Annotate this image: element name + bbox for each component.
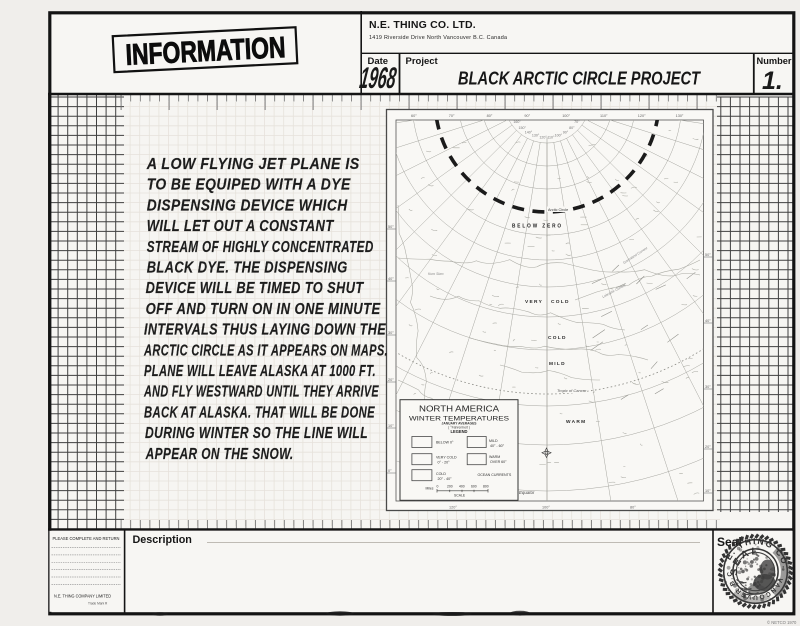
svg-text:200: 200 [447, 485, 453, 489]
svg-text:400: 400 [459, 485, 465, 489]
svg-text:Tropic of Cancer: Tropic of Cancer [557, 388, 587, 393]
svg-text:INTERVALS THUS LAYING DOWN THE: INTERVALS THUS LAYING DOWN THE [144, 322, 386, 339]
svg-text:Kuro Siwo: Kuro Siwo [428, 272, 444, 276]
svg-text:Miles: Miles [426, 486, 434, 490]
svg-text:BLACK DYE. THE DISPENSING: BLACK DYE. THE DISPENSING [147, 260, 348, 277]
svg-text:100°: 100° [542, 506, 550, 510]
svg-text:Arctic Circle: Arctic Circle [548, 208, 568, 212]
svg-text:Description: Description [133, 534, 192, 546]
svg-text:1.: 1. [762, 67, 783, 95]
svg-text:TO BE EQUIPED WITH A DYE: TO BE EQUIPED WITH A DYE [147, 177, 351, 194]
svg-text:Equator: Equator [519, 490, 535, 495]
svg-text:30°: 30° [705, 385, 711, 389]
svg-text:10°: 10° [388, 424, 394, 428]
svg-text:APPEAR ON THE SNOW.: APPEAR ON THE SNOW. [145, 446, 294, 463]
svg-text:WARM: WARM [489, 455, 500, 459]
svg-text:80°: 80° [630, 506, 636, 510]
svg-text:OCEAN CURRENTS: OCEAN CURRENTS [478, 473, 512, 477]
svg-text:N.E. THING COMPANY LIMITED: N.E. THING COMPANY LIMITED [54, 594, 111, 599]
svg-text:DURING WINTER SO THE LINE WILL: DURING WINTER SO THE LINE WILL [145, 425, 368, 442]
svg-text:10°: 10° [705, 489, 711, 493]
svg-text:Project: Project [406, 56, 439, 67]
svg-text:WARM: WARM [566, 419, 586, 425]
svg-text:80°: 80° [487, 114, 493, 118]
svg-text:© NETCO 1970: © NETCO 1970 [767, 620, 797, 625]
svg-text:COLD: COLD [436, 472, 446, 476]
svg-text:DEVICE WILL BE TIMED TO SHUT: DEVICE WILL BE TIMED TO SHUT [146, 280, 365, 297]
svg-text:AND FLY WESTWARD UNTIL THEY AR: AND FLY WESTWARD UNTIL THEY ARRIVE [143, 384, 379, 401]
svg-text:40°: 40° [705, 319, 711, 323]
svg-text:DISPENSING DEVICE WHICH: DISPENSING DEVICE WHICH [147, 197, 348, 214]
svg-text:40°: 40° [388, 277, 394, 281]
svg-text:VERY COLD: VERY COLD [436, 456, 457, 460]
svg-text:110°: 110° [600, 114, 608, 118]
svg-text:0°: 0° [388, 469, 392, 473]
svg-text:NORTH AMERICA: NORTH AMERICA [419, 405, 500, 414]
svg-text:MILD: MILD [489, 439, 498, 443]
svg-text:20° - 40°: 20° - 40° [438, 477, 453, 481]
svg-text:600: 600 [471, 485, 477, 489]
svg-text:LEGEND: LEGEND [451, 429, 469, 434]
svg-text:70°: 70° [449, 114, 455, 118]
svg-text:150°: 150° [518, 126, 526, 130]
svg-text:A LOW FLYING JET PLANE IS: A LOW FLYING JET PLANE IS [146, 156, 360, 173]
svg-text:120°: 120° [449, 506, 457, 510]
svg-text:COLD: COLD [548, 335, 567, 341]
svg-text:Trade Mark R: Trade Mark R [88, 602, 108, 606]
svg-text:90°: 90° [563, 131, 569, 135]
svg-text:Number: Number [757, 56, 792, 66]
svg-text:BACK AT ALASKA. THAT WILL BE D: BACK AT ALASKA. THAT WILL BE DONE [144, 404, 375, 421]
svg-text:100°: 100° [555, 134, 563, 138]
svg-text:0° - 20°: 0° - 20° [438, 460, 451, 464]
svg-text:130°: 130° [676, 114, 684, 118]
svg-text:PLEASE COMPLETE AND RETURN: PLEASE COMPLETE AND RETURN [53, 536, 120, 541]
svg-text:OFF AND TURN ON IN ONE MINUTE: OFF AND TURN ON IN ONE MINUTE [146, 301, 381, 318]
svg-text:0: 0 [437, 485, 439, 489]
svg-text:90°: 90° [524, 114, 530, 118]
svg-text:N.E. THING CO. LTD.: N.E. THING CO. LTD. [369, 19, 476, 31]
svg-text:20°: 20° [388, 378, 394, 382]
svg-text:WILL LET OUT A CONSTANT: WILL LET OUT A CONSTANT [147, 218, 335, 235]
svg-text:120°: 120° [539, 135, 547, 139]
svg-text:SCALE: SCALE [454, 494, 466, 498]
svg-text:120°: 120° [638, 114, 646, 118]
svg-text:50°: 50° [388, 225, 394, 229]
svg-text:60°: 60° [411, 114, 417, 118]
svg-text:1419 Riverside Drive North Van: 1419 Riverside Drive North Vancouver B.C… [369, 35, 507, 41]
svg-text:OVER 60°: OVER 60° [490, 460, 507, 464]
svg-text:80°: 80° [569, 126, 575, 130]
svg-text:70°: 70° [574, 120, 580, 124]
svg-text:BELOW 0°: BELOW 0° [436, 441, 454, 445]
svg-text:VERY COLD: VERY COLD [525, 299, 570, 305]
svg-text:100°: 100° [562, 114, 570, 118]
svg-text:1968: 1968 [358, 62, 399, 95]
svg-text:800: 800 [483, 485, 489, 489]
svg-text:160°: 160° [513, 120, 521, 124]
svg-text:STREAM OF HIGHLY CONCENTRATED: STREAM OF HIGHLY CONCENTRATED [147, 239, 374, 256]
svg-text:MILD: MILD [549, 361, 566, 367]
svg-text:50°: 50° [705, 253, 711, 257]
svg-text:20°: 20° [705, 445, 711, 449]
svg-text:ARCTIC CIRCLE AS IT APPEARS ON: ARCTIC CIRCLE AS IT APPEARS ON MAPS. [143, 342, 388, 359]
svg-text:40° - 60°: 40° - 60° [490, 444, 505, 448]
svg-text:BLACK ARCTIC CIRCLE PROJECT: BLACK ARCTIC CIRCLE PROJECT [458, 68, 701, 89]
svg-text:BELOW ZERO: BELOW ZERO [512, 224, 563, 230]
svg-text:PLANE WILL LEAVE ALASKA AT 100: PLANE WILL LEAVE ALASKA AT 1000 FT. [144, 363, 376, 380]
svg-text:30°: 30° [388, 331, 394, 335]
